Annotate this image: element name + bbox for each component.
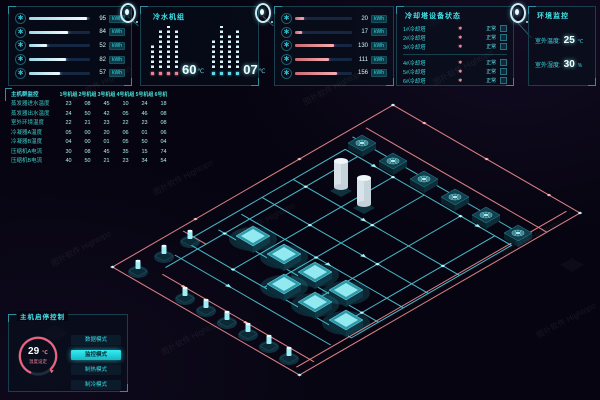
energy-row: ✱82kWh bbox=[15, 54, 125, 65]
energy-value: 17 bbox=[355, 29, 368, 35]
panel-title: 环境监控 bbox=[529, 7, 595, 21]
dotted-bar bbox=[151, 44, 154, 68]
pump[interactable] bbox=[217, 311, 237, 329]
energy-row: ✱111kWh bbox=[281, 54, 387, 65]
dotted-bar bbox=[228, 34, 231, 68]
energy-value: 130 bbox=[355, 43, 368, 49]
status-square bbox=[151, 72, 154, 75]
tower-label: 6#冷却塔 bbox=[403, 77, 442, 85]
pump[interactable] bbox=[259, 335, 279, 353]
dotted-bar bbox=[220, 26, 223, 68]
tower-status-row[interactable]: 5#冷却塔✱正常 bbox=[403, 67, 507, 76]
energy-value: 52 bbox=[93, 43, 106, 49]
table-cell: 08 bbox=[154, 119, 167, 129]
tower-status: 正常 bbox=[479, 34, 496, 41]
tower-status: 正常 bbox=[479, 77, 496, 84]
energy-row: ✱57kWh bbox=[15, 68, 125, 79]
energy-row: ✱20kWh bbox=[281, 13, 387, 24]
column-header: 5号机组 bbox=[135, 90, 154, 100]
tower-fan-icon: ✱ bbox=[446, 60, 475, 66]
temp-unit: ℃ bbox=[259, 68, 266, 75]
mode-button[interactable]: 制热模式 bbox=[71, 365, 121, 375]
unit-badge: kWh bbox=[371, 56, 387, 64]
table-cell: 08 bbox=[78, 148, 97, 158]
row-label: 压缩机B电流 bbox=[11, 157, 59, 167]
fan-icon: ✱ bbox=[281, 54, 292, 65]
unit-badge: kWh bbox=[371, 69, 387, 77]
tower-fan-icon: ✱ bbox=[446, 26, 475, 32]
energy-row: ✱95kWh bbox=[15, 13, 125, 24]
dotted-bar bbox=[212, 38, 215, 68]
table-cell: 18 bbox=[154, 100, 167, 110]
unit-badge: kWh bbox=[109, 28, 125, 36]
tower-label: 5#冷却塔 bbox=[403, 68, 442, 76]
fan-icon: ✱ bbox=[15, 68, 26, 79]
tower-status: 正常 bbox=[479, 59, 496, 66]
tower-label: 4#冷却塔 bbox=[403, 59, 442, 67]
table-cell: 05 bbox=[59, 129, 78, 139]
gauge-readout: 29 ℃ 温度设定 bbox=[15, 333, 61, 379]
progress-fill bbox=[29, 17, 87, 20]
tower-status: 正常 bbox=[479, 43, 496, 50]
water-tank[interactable] bbox=[330, 158, 352, 197]
temperature-setpoint-gauge[interactable]: 29 ℃ 温度设定 bbox=[15, 333, 61, 379]
tower-indicator-box[interactable] bbox=[500, 68, 507, 75]
progress-track bbox=[295, 31, 352, 34]
progress-fill bbox=[295, 17, 304, 20]
tower-status-rows: 1#冷却塔✱正常2#冷却塔✱正常3#冷却塔✱正常4#冷却塔✱正常5#冷却塔✱正常… bbox=[397, 21, 513, 88]
table-cell: 05 bbox=[116, 138, 135, 148]
env-unit: % bbox=[578, 63, 582, 69]
tower-label: 1#冷却塔 bbox=[403, 25, 442, 33]
temperature-readout: 60℃ bbox=[182, 64, 204, 75]
host-control-panel: 主机启停控制 29 ℃ 温度设定 数据模式监控模式制热模式制冷模式 bbox=[8, 314, 128, 392]
temp-bar-groups: 60℃ 07℃ bbox=[141, 13, 258, 83]
energy-value: 82 bbox=[93, 57, 106, 63]
environment-rows: 室外温度:25℃室外湿度:30% bbox=[529, 21, 595, 70]
tower-fan-icon: ✱ bbox=[446, 44, 475, 50]
environment-panel: 环境监控 室外温度:25℃室外湿度:30% bbox=[528, 6, 596, 86]
fan-icon: ✱ bbox=[281, 27, 292, 38]
environment-row: 室外湿度:30% bbox=[535, 59, 589, 70]
link-node-icon bbox=[120, 3, 136, 23]
pump[interactable] bbox=[154, 245, 174, 263]
dotted-bar-block bbox=[212, 26, 239, 75]
table-cell: 30 bbox=[59, 148, 78, 158]
link-node-icon bbox=[510, 3, 526, 23]
tower-status-row[interactable]: 4#冷却塔✱正常 bbox=[403, 58, 507, 67]
table-cell: 21 bbox=[78, 119, 97, 129]
progress-track bbox=[295, 17, 352, 20]
return-temp-group: 07℃ bbox=[212, 26, 267, 75]
progress-fill bbox=[295, 58, 329, 61]
energy-panel-left: ✱95kWh✱84kWh✱52kWh✱82kWh✱57kWh bbox=[8, 6, 132, 86]
water-tank[interactable] bbox=[353, 175, 375, 214]
fan-icon: ✱ bbox=[15, 54, 26, 65]
fan-icon: ✱ bbox=[281, 13, 292, 24]
progress-track bbox=[29, 31, 90, 34]
table-cell: 01 bbox=[97, 138, 116, 148]
tower-indicator-box[interactable] bbox=[500, 43, 507, 50]
unit-badge: kWh bbox=[371, 42, 387, 50]
table-cell: 20 bbox=[97, 129, 116, 139]
setpoint-unit: ℃ bbox=[42, 350, 48, 356]
status-square bbox=[228, 72, 231, 75]
unit-badge: kWh bbox=[109, 56, 125, 64]
panel-title: 冷水机组 bbox=[153, 12, 185, 22]
progress-track bbox=[29, 44, 90, 47]
host-monitor-table-panel: 主机群监控1号机组2号机组3号机组4号机组5号机组6号机组蒸发器进水温度2308… bbox=[5, 88, 167, 168]
temperature-readout: 07℃ bbox=[243, 64, 265, 75]
table-cell: 23 bbox=[59, 100, 78, 110]
progress-fill bbox=[29, 58, 66, 61]
link-node-icon bbox=[255, 3, 271, 23]
environment-row: 室外温度:25℃ bbox=[535, 35, 589, 46]
env-value: 25 bbox=[564, 35, 575, 46]
status-square bbox=[167, 72, 170, 75]
tower-indicator-box[interactable] bbox=[500, 34, 507, 41]
chiller-temp-panel: 冷水机组 60℃ 07℃ bbox=[140, 6, 259, 86]
table-title: 主机群监控 bbox=[11, 90, 59, 100]
energy-row: ✱52kWh bbox=[15, 40, 125, 51]
table-cell: 45 bbox=[97, 100, 116, 110]
table-cell: 50 bbox=[135, 138, 154, 148]
table-cell: 50 bbox=[78, 110, 97, 120]
tower-fan-icon: ✱ bbox=[446, 35, 475, 41]
tower-indicator-box[interactable] bbox=[500, 77, 507, 84]
table-cell: 22 bbox=[59, 119, 78, 129]
env-label: 室外温度: bbox=[535, 36, 561, 45]
mode-button[interactable]: 制冷模式 bbox=[71, 380, 121, 390]
energy-value: 57 bbox=[93, 70, 106, 76]
fan-icon: ✱ bbox=[281, 68, 292, 79]
pump[interactable] bbox=[238, 323, 258, 341]
energy-value: 111 bbox=[355, 57, 368, 63]
tower-status-row[interactable]: 6#冷却塔✱正常 bbox=[403, 76, 507, 85]
tower-status: 正常 bbox=[479, 25, 496, 32]
progress-track bbox=[295, 58, 352, 61]
energy-row: ✱84kWh bbox=[15, 27, 125, 38]
status-square bbox=[212, 72, 215, 75]
table-cell: 08 bbox=[154, 110, 167, 120]
column-header: 3号机组 bbox=[97, 90, 116, 100]
table-cell: 05 bbox=[116, 110, 135, 120]
tower-fan-icon: ✱ bbox=[446, 69, 475, 75]
energy-row: ✱156kWh bbox=[281, 68, 387, 79]
table-cell: 45 bbox=[97, 148, 116, 158]
pump[interactable] bbox=[279, 347, 299, 365]
progress-fill bbox=[29, 72, 60, 75]
energy-rows: ✱95kWh✱84kWh✱52kWh✱82kWh✱57kWh bbox=[9, 7, 131, 85]
table-cell: 24 bbox=[135, 100, 154, 110]
status-square bbox=[159, 72, 162, 75]
table-cell: 23 bbox=[116, 157, 135, 167]
temp-value: 60 bbox=[182, 64, 196, 75]
energy-row: ✱17kWh bbox=[281, 27, 387, 38]
energy-row: ✱130kWh bbox=[281, 40, 387, 51]
unit-badge: kWh bbox=[371, 15, 387, 23]
table-cell: 50 bbox=[78, 157, 97, 167]
energy-rows: ✱20kWh✱17kWh✱130kWh✱111kWh✱156kWh bbox=[275, 7, 393, 85]
table-cell: 04 bbox=[154, 138, 167, 148]
fan-icon: ✱ bbox=[281, 40, 292, 51]
tower-indicator-box[interactable] bbox=[500, 25, 507, 32]
energy-value: 156 bbox=[355, 70, 368, 76]
table-cell: 15 bbox=[135, 148, 154, 158]
table-cell: 23 bbox=[135, 119, 154, 129]
table-cell: 01 bbox=[135, 129, 154, 139]
divider bbox=[403, 54, 507, 55]
setpoint-label: 温度设定 bbox=[29, 359, 47, 365]
fan-icon: ✱ bbox=[15, 27, 26, 38]
table-cell: 23 bbox=[97, 119, 116, 129]
row-label: 冷凝器B温度 bbox=[11, 138, 59, 148]
progress-track bbox=[295, 44, 352, 47]
tower-status-row[interactable]: 1#冷却塔✱正常 bbox=[403, 24, 507, 33]
table-cell: 06 bbox=[116, 129, 135, 139]
progress-track bbox=[29, 58, 90, 61]
panel-title: 冷却塔设备状态 bbox=[397, 7, 513, 21]
mode-button[interactable]: 数据模式 bbox=[71, 335, 121, 345]
row-label: 蒸发器进水温度 bbox=[11, 100, 59, 110]
table-cell: 04 bbox=[59, 138, 78, 148]
tower-status-row[interactable]: 3#冷却塔✱正常 bbox=[403, 42, 507, 51]
setpoint-value: 29 bbox=[28, 346, 39, 357]
column-header: 4号机组 bbox=[116, 90, 135, 100]
progress-fill bbox=[295, 31, 302, 34]
tower-status-panel: 冷却塔设备状态 1#冷却塔✱正常2#冷却塔✱正常3#冷却塔✱正常4#冷却塔✱正常… bbox=[396, 6, 514, 86]
temp-unit: ℃ bbox=[197, 68, 204, 75]
unit-badge: kWh bbox=[109, 42, 125, 50]
tower-label: 2#冷却塔 bbox=[403, 34, 442, 42]
progress-track bbox=[29, 72, 90, 75]
energy-value: 84 bbox=[93, 29, 106, 35]
status-square bbox=[220, 72, 223, 75]
table-cell: 10 bbox=[116, 100, 135, 110]
env-value: 30 bbox=[564, 59, 575, 70]
host-monitor-table: 主机群监控1号机组2号机组3号机组4号机组5号机组6号机组蒸发器进水温度2308… bbox=[5, 88, 167, 167]
dotted-bar bbox=[236, 28, 239, 68]
tower-indicator-box[interactable] bbox=[500, 59, 507, 66]
equipment-layer bbox=[128, 135, 532, 365]
progress-fill bbox=[295, 44, 334, 47]
table-cell: 08 bbox=[78, 100, 97, 110]
temp-value: 07 bbox=[243, 64, 257, 75]
energy-value: 20 bbox=[355, 16, 368, 22]
table-cell: 00 bbox=[78, 138, 97, 148]
status-square bbox=[175, 72, 178, 75]
pump[interactable] bbox=[196, 299, 216, 317]
row-label: 室外环境温度 bbox=[11, 119, 59, 129]
table-cell: 22 bbox=[116, 119, 135, 129]
table-cell: 35 bbox=[116, 148, 135, 158]
table-cell: 54 bbox=[154, 157, 167, 167]
progress-fill bbox=[295, 72, 337, 75]
progress-track bbox=[29, 17, 90, 20]
progress-track bbox=[295, 72, 352, 75]
panel-title: 主机启停控制 bbox=[17, 311, 68, 321]
tower-status: 正常 bbox=[479, 68, 496, 75]
fan-icon: ✱ bbox=[15, 13, 26, 24]
energy-value: 95 bbox=[93, 16, 106, 22]
mode-buttons: 数据模式监控模式制热模式制冷模式 bbox=[71, 335, 121, 390]
table-cell: 42 bbox=[97, 110, 116, 120]
column-header: 2号机组 bbox=[78, 90, 97, 100]
table-cell: 06 bbox=[154, 129, 167, 139]
energy-panel-right: ✱20kWh✱17kWh✱130kWh✱111kWh✱156kWh bbox=[274, 6, 394, 86]
pump[interactable] bbox=[180, 230, 200, 248]
mode-button[interactable]: 监控模式 bbox=[71, 350, 121, 360]
dotted-bar bbox=[159, 30, 162, 68]
env-label: 室外湿度: bbox=[535, 60, 561, 69]
progress-fill bbox=[29, 44, 47, 47]
column-header: 6号机组 bbox=[154, 90, 167, 100]
env-unit: ℃ bbox=[578, 39, 584, 45]
row-label: 冷凝器A温度 bbox=[11, 129, 59, 139]
unit-badge: kWh bbox=[371, 28, 387, 36]
supply-temp-group: 60℃ bbox=[151, 26, 206, 75]
pump[interactable] bbox=[128, 260, 148, 278]
status-square bbox=[236, 72, 239, 75]
unit-badge: kWh bbox=[109, 69, 125, 77]
tower-status-row[interactable]: 2#冷却塔✱正常 bbox=[403, 33, 507, 42]
fan-icon: ✱ bbox=[15, 40, 26, 51]
dotted-bar bbox=[167, 26, 170, 68]
column-header: 1号机组 bbox=[59, 90, 78, 100]
table-cell: 21 bbox=[97, 157, 116, 167]
table-cell: 24 bbox=[59, 110, 78, 120]
table-cell: 34 bbox=[135, 157, 154, 167]
table-cell: 40 bbox=[59, 157, 78, 167]
tower-fan-icon: ✱ bbox=[446, 78, 475, 84]
row-label: 蒸发器出水温度 bbox=[11, 110, 59, 120]
dotted-bar bbox=[175, 30, 178, 68]
table-cell: 00 bbox=[78, 129, 97, 139]
row-label: 压缩机A电流 bbox=[11, 148, 59, 158]
progress-fill bbox=[29, 31, 68, 34]
dashboard: ✱95kWh✱84kWh✱52kWh✱82kWh✱57kWh 冷水机组 60℃ … bbox=[0, 0, 600, 400]
table-cell: 46 bbox=[135, 110, 154, 120]
dotted-bar-block bbox=[151, 26, 178, 75]
pump[interactable] bbox=[175, 287, 195, 305]
table-cell: 74 bbox=[154, 148, 167, 158]
tower-label: 3#冷却塔 bbox=[403, 43, 442, 51]
